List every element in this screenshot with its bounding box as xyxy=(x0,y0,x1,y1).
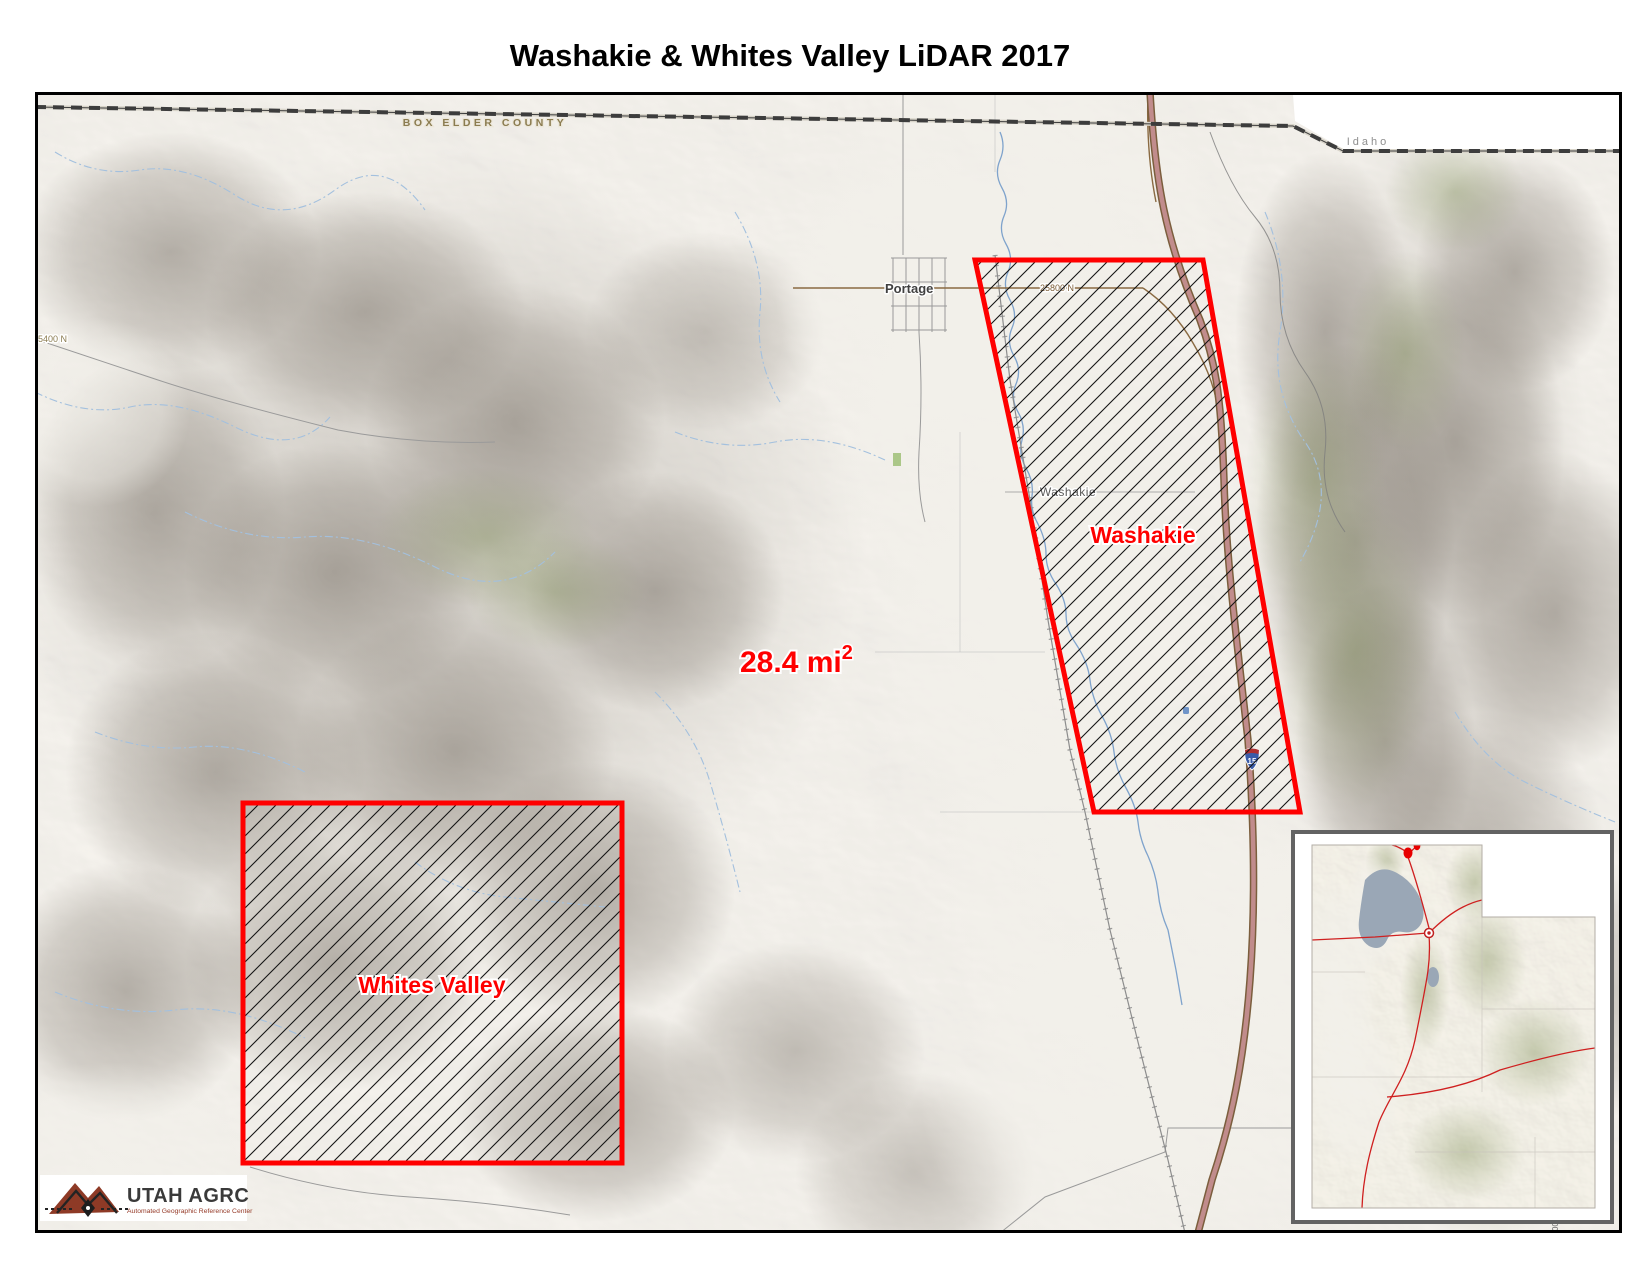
logo-tagline: Automated Geographic Reference Center xyxy=(127,1208,253,1215)
map-document: Washakie & Whites Valley LiDAR 2017 xyxy=(0,0,1650,1275)
county-label: BOX ELDER COUNTY xyxy=(403,117,568,129)
town-label-portage: Portage xyxy=(885,281,933,296)
outside-state-mask xyxy=(1293,95,1619,149)
map-canvas: BOX ELDER COUNTY Idaho Portage Washakie … xyxy=(35,92,1622,1233)
slc-marker xyxy=(1425,929,1434,938)
page-title: Washakie & Whites Valley LiDAR 2017 xyxy=(0,38,1580,74)
whites-valley-area: Whites Valley xyxy=(243,803,622,1163)
green-field-patch xyxy=(893,453,901,466)
inset-map xyxy=(1293,832,1612,1222)
utah-lake xyxy=(1427,967,1439,987)
road-label-5400n: 5400 N xyxy=(38,334,67,344)
logo-name: UTAH AGRC xyxy=(127,1185,249,1207)
whites-valley-area-label: Whites Valley xyxy=(358,972,505,998)
utah-agrc-logo: UTAH AGRC Automated Geographic Reference… xyxy=(40,1175,253,1221)
total-area-label: 28.4 mi2 xyxy=(740,642,853,679)
state-label-idaho: Idaho xyxy=(1347,136,1390,148)
washakie-area-label: Washakie xyxy=(1090,522,1195,548)
